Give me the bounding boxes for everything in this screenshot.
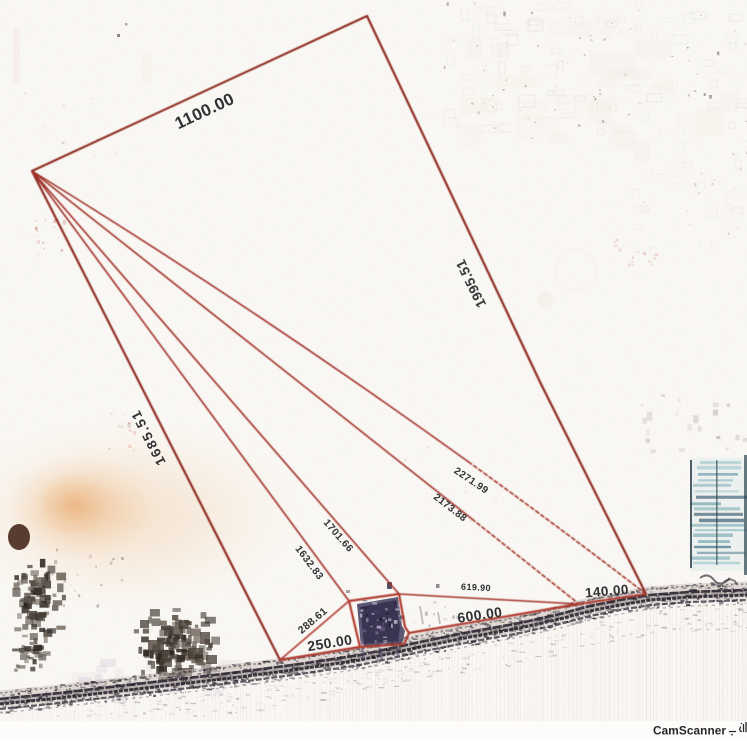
svg-text:CamScanner: CamScanner: [653, 724, 726, 738]
svg-text:619.90: 619.90: [461, 582, 491, 594]
